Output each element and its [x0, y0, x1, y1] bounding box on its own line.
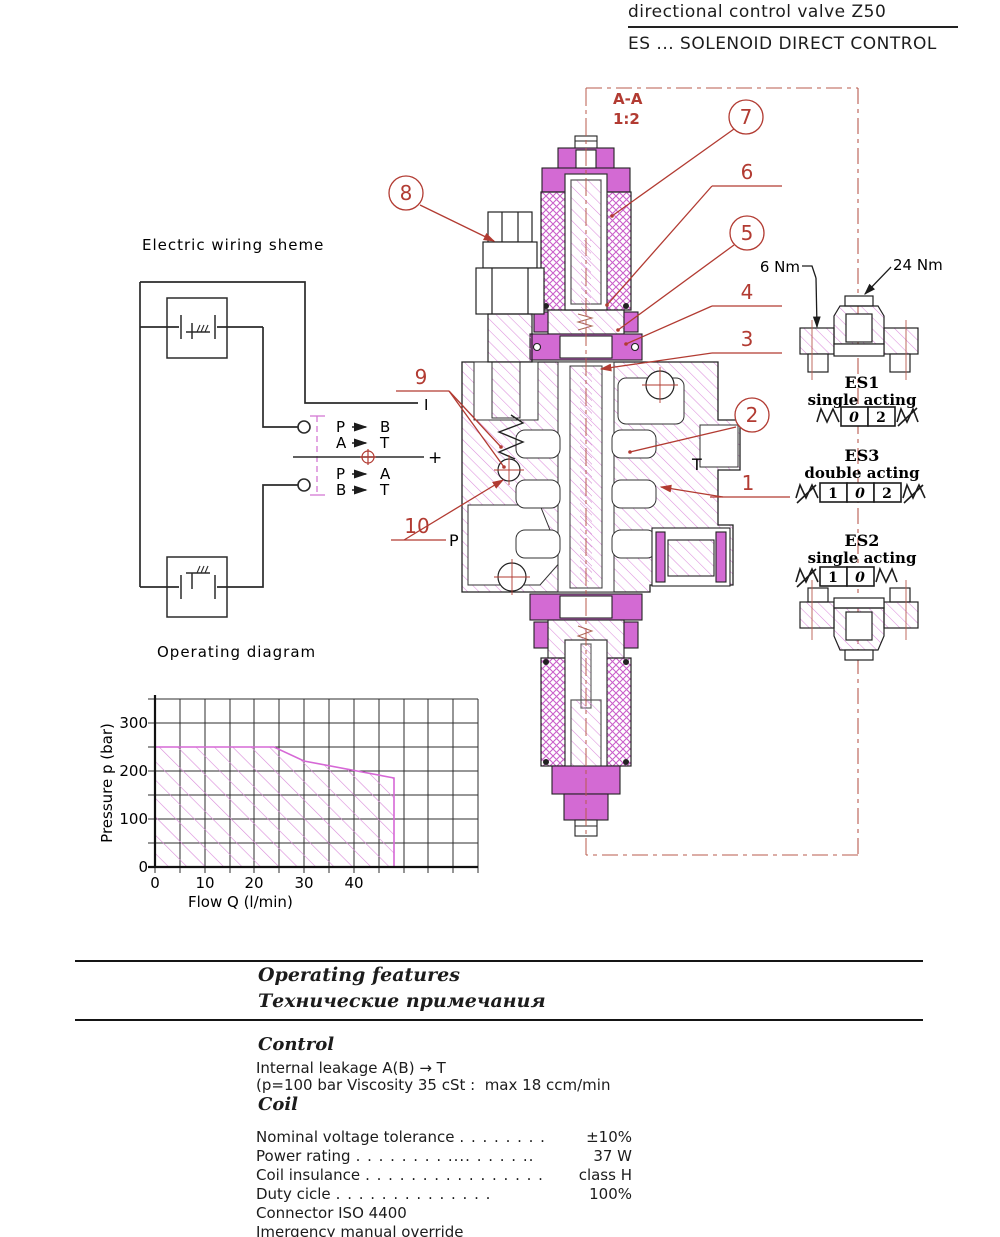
- chart-ylabel: Pressure p (bar): [98, 723, 116, 843]
- ytick-0: 0: [138, 858, 148, 876]
- spec-row-voltage: Nominal voltage tolerance . . . . . . . …: [256, 1128, 632, 1147]
- spec-value: 100%: [589, 1185, 632, 1204]
- chart-xlabel: Flow Q (l/min): [188, 893, 293, 911]
- spring-icon: [817, 409, 839, 422]
- divider-top: [75, 960, 923, 962]
- callout-7: 7: [740, 105, 753, 129]
- solenoid-icon: [897, 408, 918, 426]
- section-view-label: A-A: [613, 90, 643, 108]
- es2-pos2: 0: [855, 570, 865, 586]
- callout-4: 4: [741, 280, 754, 304]
- coil-spec-list: Nominal voltage tolerance . . . . . . . …: [256, 1128, 632, 1237]
- flow-direction-labels: P B A T P A B T: [336, 418, 391, 499]
- features-heading-en: Operating features: [258, 964, 460, 986]
- port-p-label: P: [449, 531, 459, 550]
- flow-to-2: T: [379, 434, 390, 452]
- control-heading: Control: [258, 1034, 334, 1055]
- solenoid-spring-icon-left: [796, 485, 818, 503]
- coil-heading: Coil: [258, 1094, 298, 1115]
- torque-small-label: 6 Nm: [760, 258, 800, 276]
- callout-2: 2: [746, 403, 759, 427]
- spec-dots: . . . . . . . . . . . . . .: [331, 1185, 589, 1204]
- control-line-viscosity: (p=100 bar Viscosity 35 cSt : max 18 ccm…: [256, 1076, 610, 1094]
- xtick-10: 10: [195, 874, 214, 892]
- spec-label: Connector ISO 4400: [256, 1204, 407, 1223]
- ytick-300: 300: [119, 714, 148, 732]
- spec-value: ±10%: [586, 1128, 632, 1147]
- xtick-30: 30: [294, 874, 313, 892]
- es3-pos3: 2: [882, 486, 892, 502]
- variant-es2: ES2 single acting 1 0: [796, 531, 917, 587]
- spec-label: Nominal voltage tolerance: [256, 1128, 454, 1147]
- callout-6: 6: [741, 160, 754, 184]
- polarity-plus-label: +: [428, 448, 442, 468]
- variant-es3: ES3 double acting 1 0 2: [796, 446, 925, 503]
- spec-row-override: Imergency manual override: [256, 1223, 632, 1237]
- xtick-20: 20: [244, 874, 263, 892]
- control-line-leakage: Internal leakage A(B) → T: [256, 1059, 446, 1077]
- es3-name: ES3: [845, 446, 880, 465]
- spec-label: Coil insulance: [256, 1166, 360, 1185]
- operating-envelope: [155, 747, 394, 867]
- flow-to-4: T: [379, 481, 390, 499]
- es3-mode: double acting: [804, 464, 920, 482]
- spec-row-connector: Connector ISO 4400: [256, 1204, 632, 1223]
- variant-es1: ES1 single acting 0 2: [808, 373, 918, 426]
- wiring-title: Electric wiring sheme: [142, 236, 324, 254]
- current-label: I: [424, 396, 428, 414]
- callout-9: 9: [415, 365, 428, 389]
- divider-bottom: [75, 1019, 923, 1021]
- ytick-200: 200: [119, 762, 148, 780]
- spec-label: Imergency manual override: [256, 1223, 464, 1237]
- chart-title: Operating diagram: [157, 643, 316, 661]
- callout-1: 1: [742, 471, 755, 495]
- spec-dots: . . . . . . . .: [454, 1128, 586, 1147]
- es3-pos2: 0: [855, 486, 865, 502]
- es2-mode: single acting: [808, 549, 917, 567]
- port-t-label: T: [691, 455, 702, 474]
- side-port-plug: [652, 528, 730, 586]
- operating-diagram: Operating diagram: [98, 643, 478, 911]
- solenoid-spring-icon-right: [903, 485, 925, 503]
- callout-10: 10: [404, 514, 429, 538]
- spec-label: Duty cicle: [256, 1185, 331, 1204]
- terminal-circle-top: [298, 421, 310, 433]
- solenoid-spring-icon: [796, 569, 818, 587]
- valve-top-view: [800, 296, 918, 380]
- features-heading-ru: Технические примечания: [258, 990, 546, 1012]
- spec-row-power: Power rating . . . . . . . . .... . . . …: [256, 1147, 632, 1166]
- spec-row-duty: Duty cicle . . . . . . . . . . . . . . 1…: [256, 1185, 632, 1204]
- xtick-0: 0: [150, 874, 160, 892]
- xtick-40: 40: [344, 874, 363, 892]
- wiring-scheme: Electric wiring sheme: [140, 236, 442, 617]
- es2-name: ES2: [845, 531, 880, 550]
- flow-arrow-icons: [352, 427, 366, 490]
- spring-icon: [876, 569, 897, 582]
- connector-dashed-line: [310, 416, 325, 495]
- es1-pos2: 2: [876, 410, 886, 426]
- section-label: A-A 1:2: [613, 90, 643, 128]
- center-mark-icon: [360, 449, 376, 465]
- callout-8: 8: [400, 181, 413, 205]
- flow-from-4: B: [336, 481, 346, 499]
- spec-dots: . . . . . . . . . . . . . . . .: [360, 1166, 579, 1185]
- es1-pos1: 0: [849, 410, 859, 426]
- technical-drawing: Electric wiring sheme: [0, 0, 1000, 950]
- valve-bottom-view: [800, 580, 918, 660]
- torque-large-label: 24 Nm: [893, 256, 943, 274]
- ytick-100: 100: [119, 810, 148, 828]
- spec-value: 37 W: [593, 1147, 632, 1166]
- callout-5: 5: [741, 221, 754, 245]
- section-scale-label: 1:2: [613, 110, 640, 128]
- datasheet-page: directional control valve Z50 ES ... SOL…: [0, 0, 1000, 1237]
- es1-name: ES1: [845, 373, 880, 392]
- callout-3: 3: [741, 327, 754, 351]
- es2-pos1: 1: [828, 570, 838, 586]
- spec-dots: . . . . . . . . .... . . . . ..: [351, 1147, 594, 1166]
- solenoid-coil-symbol-top: [167, 298, 227, 358]
- terminal-circle-bottom: [298, 479, 310, 491]
- flow-from-2: A: [336, 434, 347, 452]
- spec-label: Power rating: [256, 1147, 351, 1166]
- es3-pos1: 1: [828, 486, 838, 502]
- spec-row-insulation: Coil insulance . . . . . . . . . . . . .…: [256, 1166, 632, 1185]
- spec-value: class H: [579, 1166, 632, 1185]
